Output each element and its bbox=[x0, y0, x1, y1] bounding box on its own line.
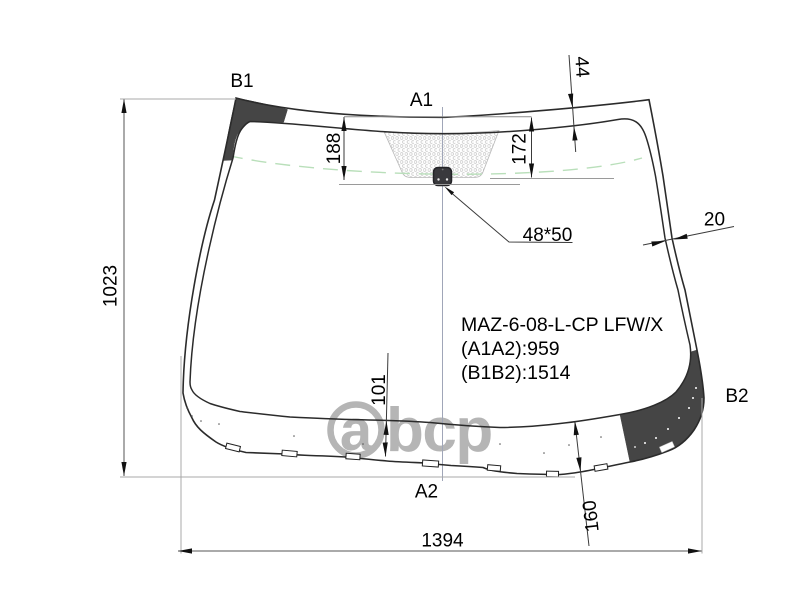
svg-text:a: a bbox=[340, 398, 373, 463]
svg-text:(B1B2):1514: (B1B2):1514 bbox=[461, 362, 571, 384]
svg-text:(A1A2):959: (A1A2):959 bbox=[461, 338, 560, 360]
svg-text:20: 20 bbox=[704, 210, 725, 231]
svg-text:160: 160 bbox=[579, 499, 603, 533]
svg-text:B2: B2 bbox=[725, 386, 748, 407]
svg-text:bcp: bcp bbox=[386, 396, 492, 465]
svg-text:48*50: 48*50 bbox=[523, 225, 573, 246]
svg-text:A2: A2 bbox=[415, 482, 438, 503]
svg-text:1023: 1023 bbox=[101, 265, 122, 307]
svg-text:44: 44 bbox=[570, 56, 592, 79]
svg-text:B1: B1 bbox=[230, 71, 253, 92]
svg-text:101: 101 bbox=[369, 374, 390, 406]
svg-text:188: 188 bbox=[324, 133, 345, 165]
svg-text:A1: A1 bbox=[410, 90, 433, 111]
svg-text:MAZ-6-08-L-CP LFW/X: MAZ-6-08-L-CP LFW/X bbox=[461, 314, 663, 336]
svg-text:1394: 1394 bbox=[421, 531, 464, 552]
svg-text:172: 172 bbox=[510, 133, 531, 165]
